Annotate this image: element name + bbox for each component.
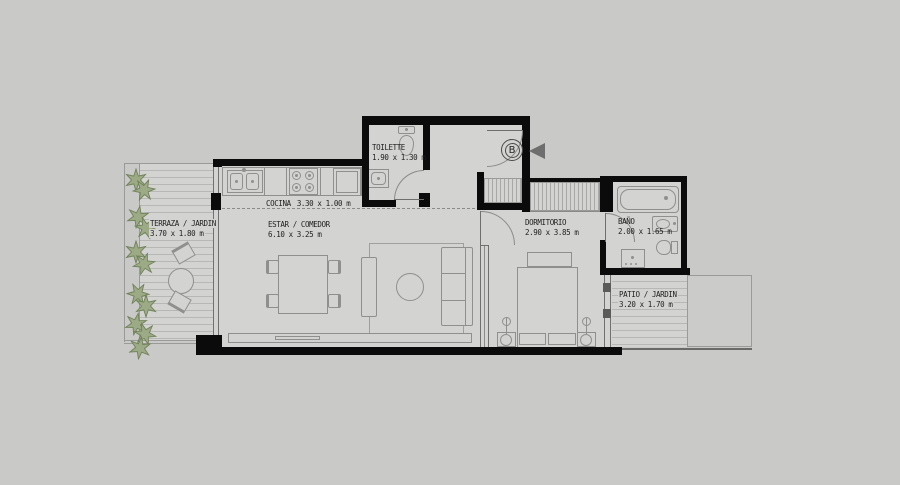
toilet-flush [405,128,408,131]
room-dims: 2.00 x 1.65 m [617,227,673,236]
lamp-base [580,334,592,346]
counter-divider [286,167,287,196]
burner-center [295,186,298,189]
terraza-label: TERRAZA / JARDIN 3.70 x 1.80 m [149,219,217,238]
bed-foot-bench [527,252,572,267]
bathtub-inner [620,189,676,210]
dormitorio-label: DORMITORIO 2.90 x 3.85 m [524,218,580,237]
room-dims: 3.30 x 1.00 m [296,199,352,208]
entrance-marker: B [501,139,523,161]
wall [213,159,363,166]
wall [600,176,687,182]
dining-chair [328,294,341,308]
basin-drain [377,177,380,180]
faucet [242,168,246,172]
sofa-backrest-line [465,247,466,326]
counter-divider [320,167,321,196]
burner-center [308,186,311,189]
wall [590,347,622,355]
room-name: TERRAZA / JARDIN [149,219,217,228]
bath-toilet-bowl [656,240,671,255]
vanity-dot [635,263,637,265]
burner-center [308,174,311,177]
tv-unit [361,257,377,317]
sink-drain [251,180,254,183]
room-dims: 1.90 x 1.30 m [371,153,427,162]
patio-bottom-line [622,348,752,350]
lamp-base [500,334,512,346]
vanity-dot [625,263,627,265]
vanity-dot [630,263,632,265]
wardrobe-inner-line [484,246,485,347]
bath-toilet-tank [671,241,678,254]
wall [477,203,523,210]
entrance-marker-letter: B [505,143,520,158]
entrance-arrow-icon [529,143,545,159]
estar-label: ESTAR / COMEDOR 6.10 x 3.25 m [267,220,331,239]
dining-table [278,255,328,314]
sink-drain [235,180,238,183]
cocina-label: COCINA 3.30 x 1.00 m [265,199,351,209]
toilette-label: TOILETTE 1.90 x 1.30 m [371,143,427,162]
room-dims: 3.20 x 1.70 m [618,300,674,309]
room-name: COCINA [265,199,296,208]
patio-window-post [603,283,611,292]
wall [530,178,602,182]
patio-label: PATIO / JARDIN 3.20 x 1.70 m [618,290,678,309]
entrance-door-leaf [487,130,523,131]
closet-bottom-line [530,211,600,212]
sofa-cushion-line [442,273,465,274]
room-name: TOILETTE [371,143,406,152]
wall [211,193,221,210]
room-dims: 2.90 x 3.85 m [524,228,580,237]
bathtub-drain [664,196,668,200]
wall [362,116,530,125]
sofa-cushion-line [442,300,465,301]
lamp-bulb-icon [582,317,591,326]
bathroom-door-leaf [605,213,606,242]
burner-center [295,174,298,177]
terraza-top-line [124,163,214,164]
dining-chair [266,294,279,308]
wall [522,175,530,212]
room-name: DORMITORIO [524,218,567,227]
sideboard-drawer [275,336,320,340]
patio-side-garden [687,275,752,347]
closet-hatch [484,178,522,203]
terrace-table [168,268,194,294]
wall [681,176,687,275]
coffee-table [396,273,424,301]
closet-hatch [530,182,600,211]
wall [196,347,622,355]
pillow [548,333,576,345]
sofa [441,247,473,326]
counter-divider [264,167,265,196]
room-name: PATIO / JARDIN [618,290,678,299]
room-dims: 3.70 x 1.80 m [149,229,205,238]
sideboard [228,333,472,343]
room-dims: 6.10 x 3.25 m [267,230,323,239]
pillow [519,333,546,345]
dining-chair [328,260,341,274]
wall [362,116,369,207]
wall [362,200,396,207]
plant-icon [126,334,153,361]
dining-chair [266,260,279,274]
room-name: ESTAR / COMEDOR [267,220,331,229]
toilette-door-leaf [394,199,424,200]
patio-deck [612,275,687,347]
floor-plan: TERRAZA / JARDIN 3.70 x 1.80 m COCINA 3.… [0,0,900,485]
lamp-bulb-icon [502,317,511,326]
patio-window-post [603,309,611,318]
bedroom-door-leaf [480,211,481,245]
bath-sink-faucet [673,222,676,225]
wall [213,159,222,167]
room-name: BAÑO [617,217,635,226]
bano-label: BAÑO 2.00 x 1.65 m [617,217,673,236]
vanity-knob [631,256,634,259]
wall [600,268,690,275]
fridge-inner [336,171,358,193]
